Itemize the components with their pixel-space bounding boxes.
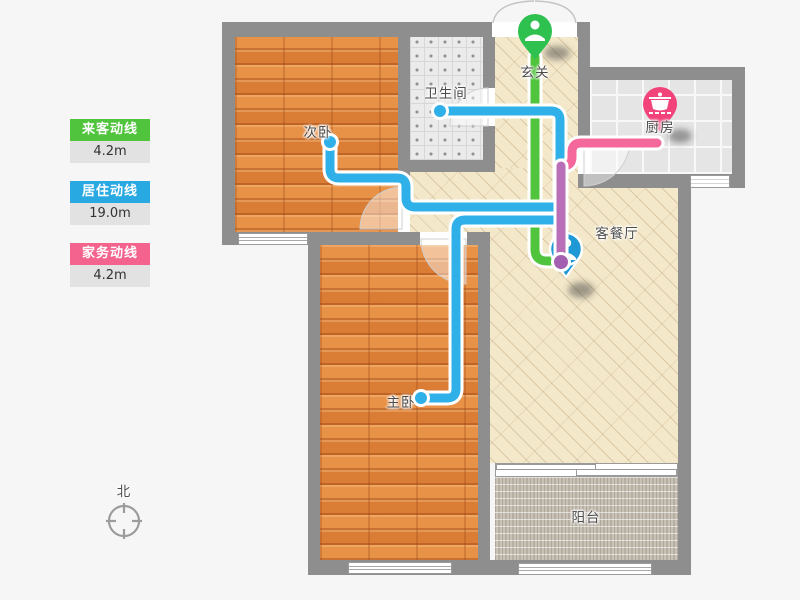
floor-plan: 玄关 卫生间 次卧 厨房 客餐厅 主卧 阳台 北: [0, 0, 800, 600]
label-kitchen: 厨房: [646, 116, 675, 136]
room-floor-entry: [490, 35, 578, 174]
legend-label: 居住动线: [70, 181, 150, 203]
label-master-bedroom: 主卧: [387, 391, 416, 411]
label-balcony: 阳台: [572, 506, 601, 526]
legend-item-resident-route[interactable]: 居住动线 19.0m: [70, 181, 150, 225]
bathroom-door-opening: [483, 88, 495, 126]
label-entry: 玄关: [521, 61, 550, 81]
legend-value: 4.2m: [70, 141, 150, 163]
wall: [222, 22, 492, 37]
wall: [478, 232, 490, 575]
wall: [678, 180, 691, 575]
wall: [398, 160, 495, 172]
label-north: 北: [117, 480, 132, 500]
entry-door-swing: [493, 1, 576, 23]
wall: [732, 67, 745, 188]
entry-door-opening: [492, 22, 577, 37]
legend-value: 19.0m: [70, 203, 150, 225]
label-living-dining: 客餐厅: [595, 222, 639, 242]
legend-item-chore-route[interactable]: 家务动线 4.2m: [70, 243, 150, 287]
sliding-window: [495, 463, 678, 477]
legend-label: 家务动线: [70, 243, 150, 265]
legend-item-visitor-route[interactable]: 来客动线 4.2m: [70, 119, 150, 163]
sliding-window-pane: [576, 469, 677, 476]
master-bedroom-door-opening: [420, 232, 467, 245]
kitchen-door-opening: [578, 138, 590, 174]
wall: [222, 22, 235, 245]
window: [690, 175, 730, 188]
wall: [585, 67, 745, 80]
window: [518, 563, 652, 575]
legend-value: 4.2m: [70, 265, 150, 287]
window: [348, 562, 452, 574]
label-secondary-bedroom: 次卧: [304, 121, 333, 141]
legend-label: 来客动线: [70, 119, 150, 141]
secondary-bedroom-door-opening: [398, 186, 410, 232]
label-bathroom: 卫生间: [424, 82, 468, 102]
compass-icon: [106, 503, 142, 539]
window: [238, 233, 308, 245]
wall: [308, 245, 320, 560]
